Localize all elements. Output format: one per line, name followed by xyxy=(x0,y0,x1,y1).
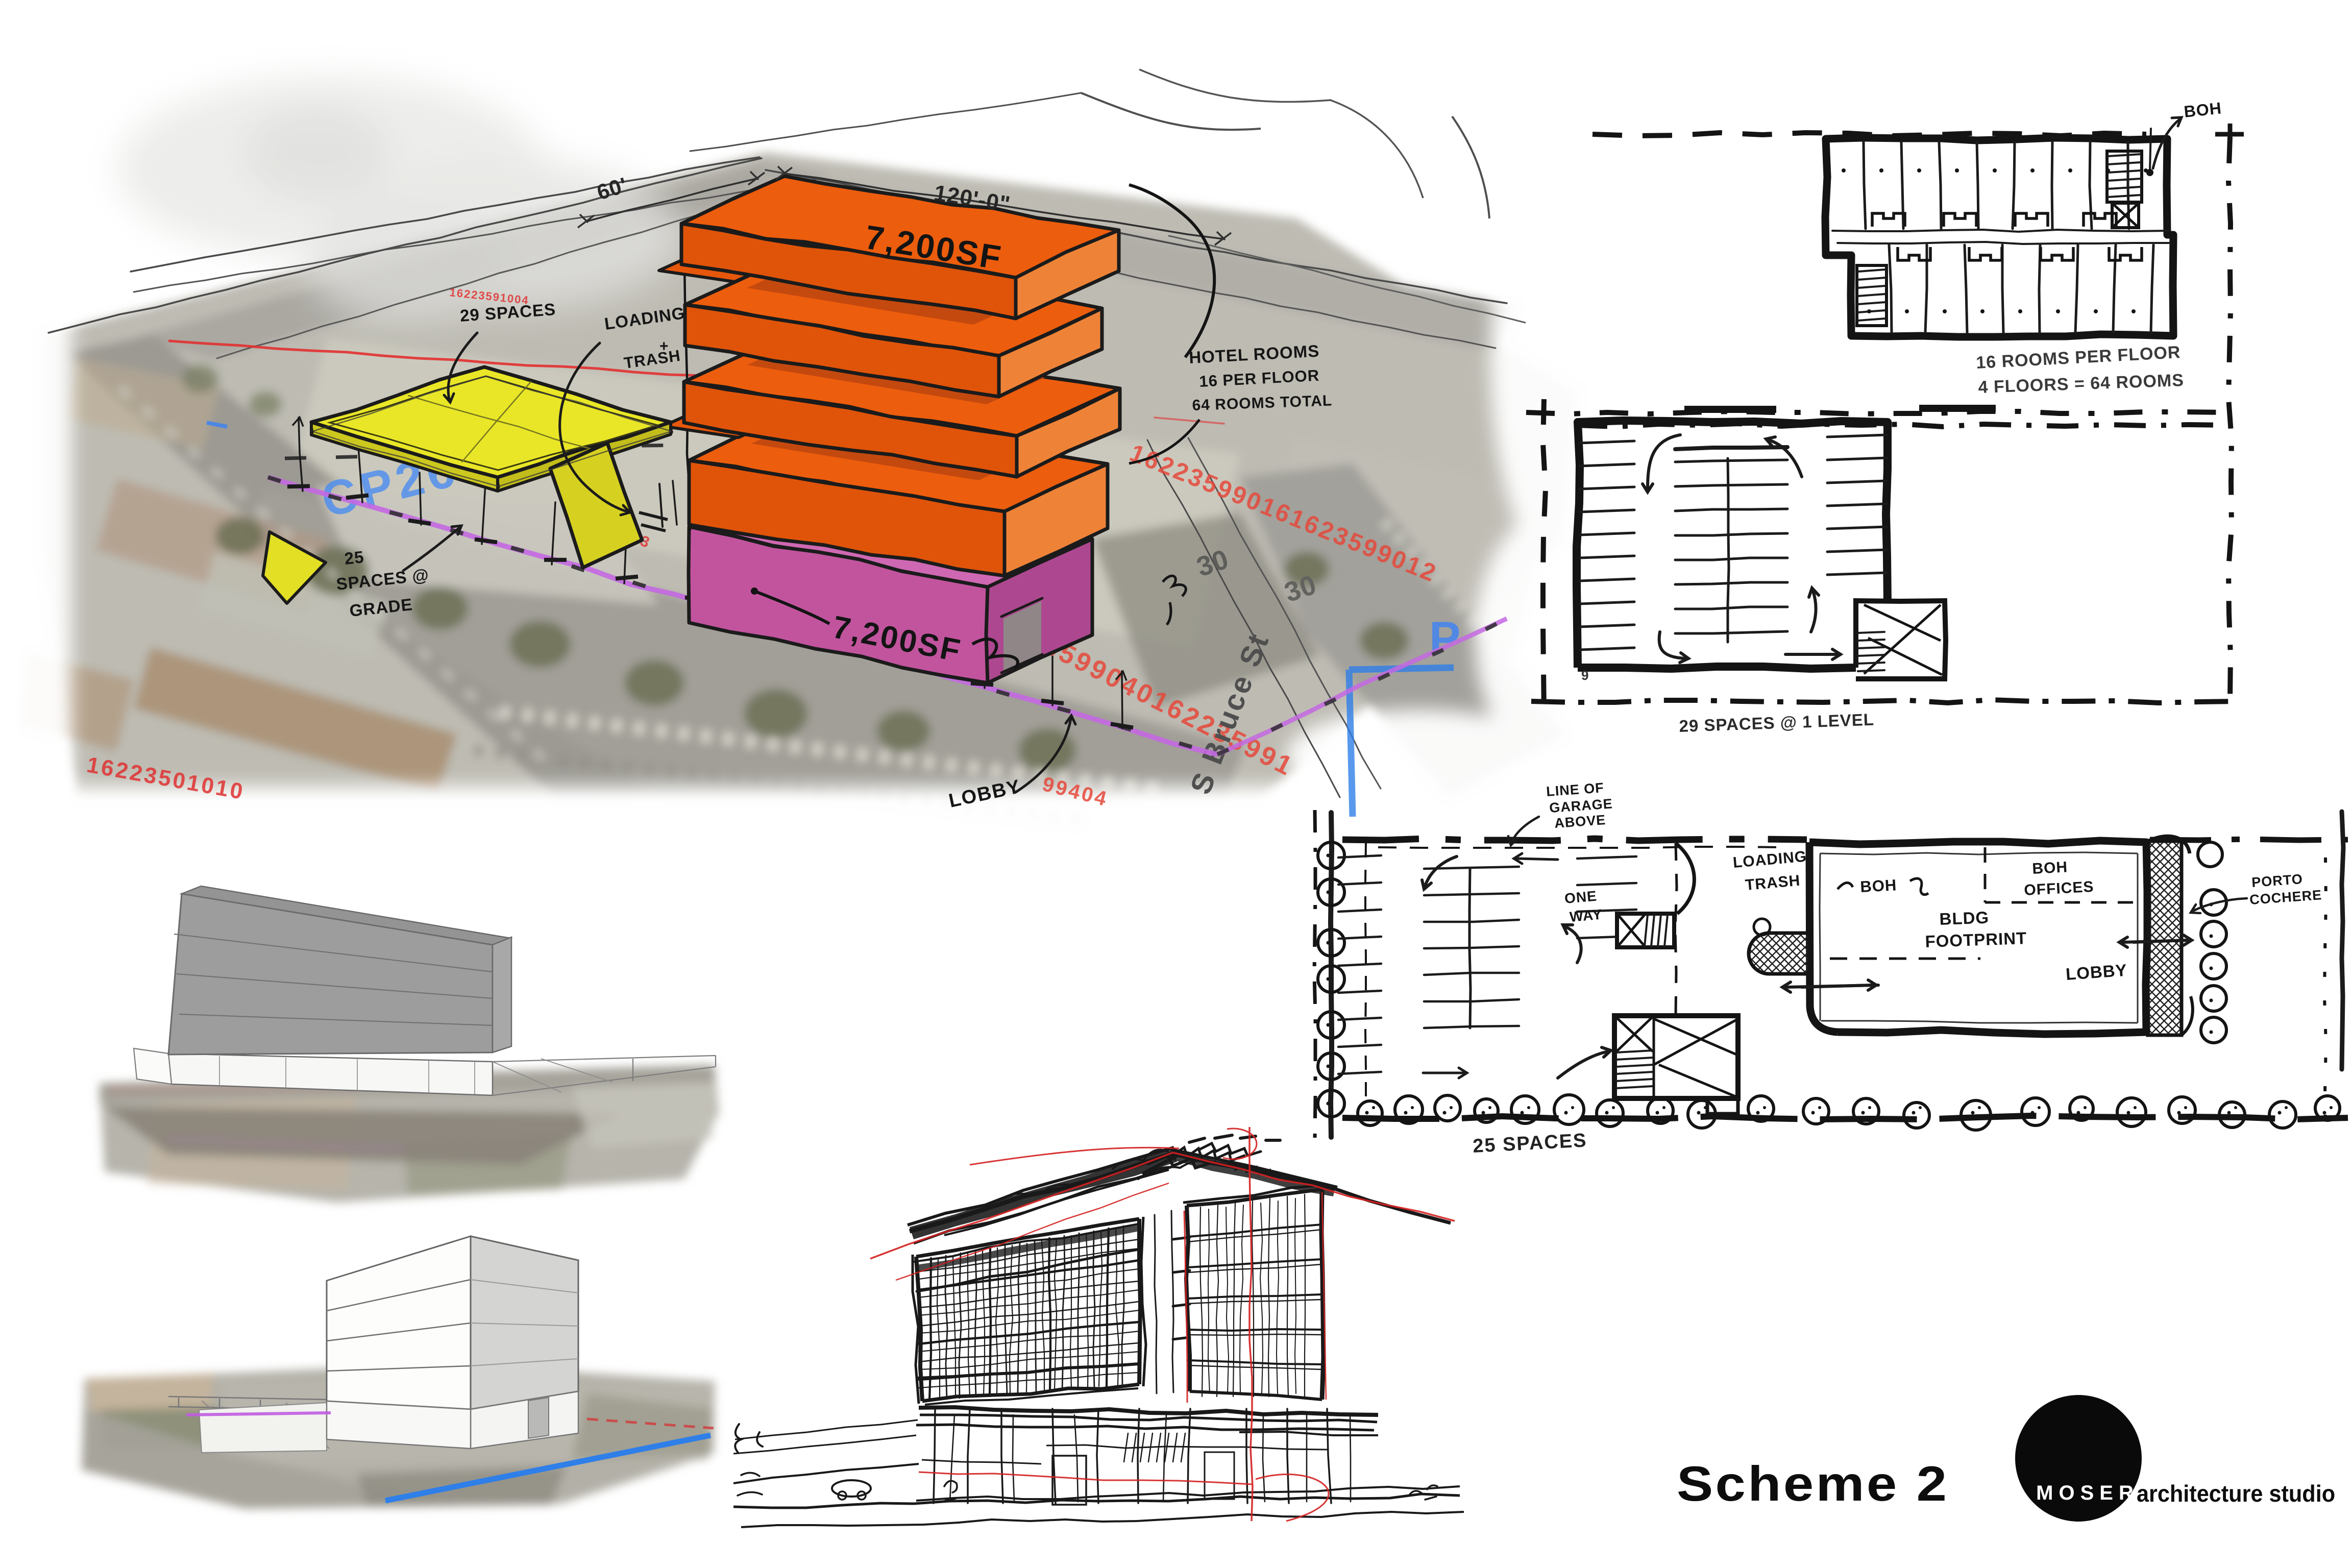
svg-text:ONE: ONE xyxy=(1564,888,1598,906)
svg-text:9: 9 xyxy=(1581,668,1589,683)
svg-text:Scheme 2: Scheme 2 xyxy=(1677,1456,1949,1511)
svg-text:P: P xyxy=(1429,612,1461,665)
svg-text:BOH: BOH xyxy=(2032,859,2068,877)
svg-text:WAY: WAY xyxy=(1569,906,1603,924)
svg-text:FOOTPRINT: FOOTPRINT xyxy=(1925,928,2027,951)
svg-text:BOH: BOH xyxy=(1860,876,1898,896)
svg-text:BLDG: BLDG xyxy=(1939,908,1990,928)
svg-text:BOH: BOH xyxy=(2183,99,2222,121)
svg-text:MOSER: MOSER xyxy=(2036,1482,2139,1504)
svg-text:architecture studio: architecture studio xyxy=(2137,1481,2335,1507)
svg-text:25: 25 xyxy=(344,547,365,568)
